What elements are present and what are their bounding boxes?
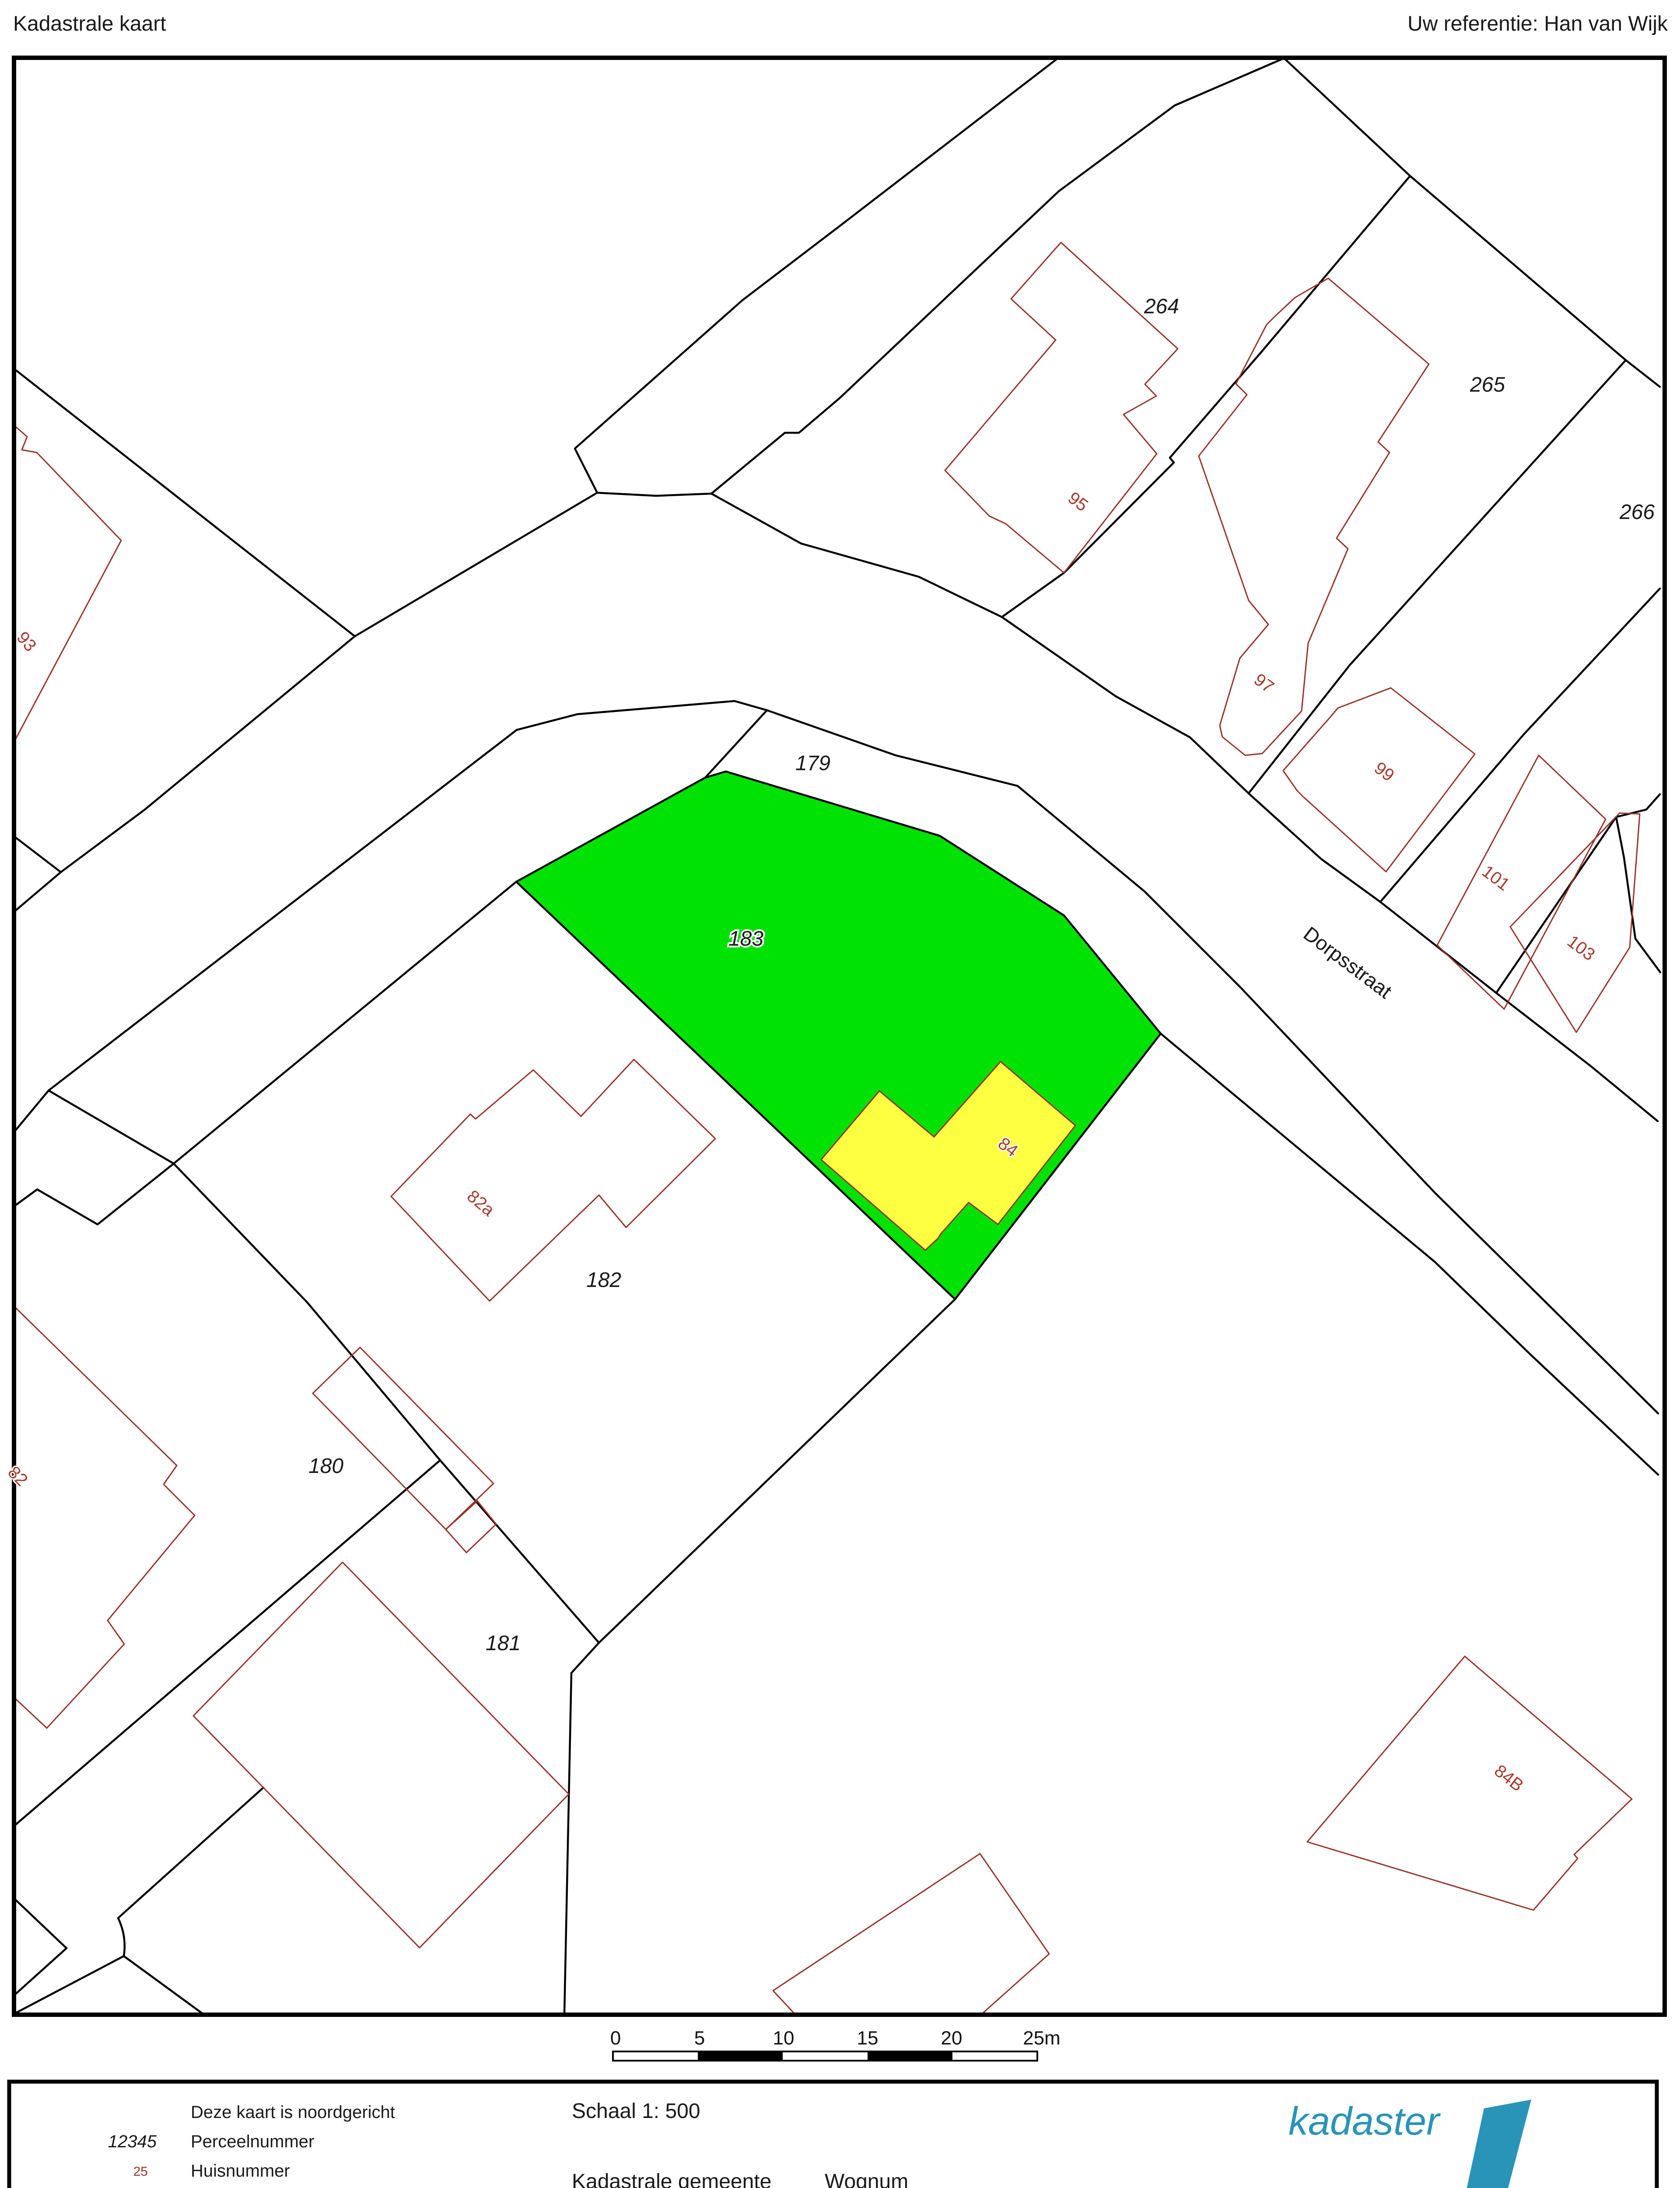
svg-text:Huisnummer: Huisnummer xyxy=(191,2161,290,2181)
svg-text:183: 183 xyxy=(728,927,763,950)
svg-text:182: 182 xyxy=(586,1269,621,1292)
svg-text:180: 180 xyxy=(308,1455,343,1478)
svg-text:Deze kaart is noordgericht: Deze kaart is noordgericht xyxy=(191,2103,395,2122)
svg-text:Schaal 1: 500: Schaal 1: 500 xyxy=(572,2100,700,2123)
svg-text:Kadastrale gemeente: Kadastrale gemeente xyxy=(572,2170,771,2188)
svg-text:25m: 25m xyxy=(1023,2027,1060,2049)
svg-text:0: 0 xyxy=(610,2027,621,2049)
svg-text:Uw referentie: Han van Wijk: Uw referentie: Han van Wijk xyxy=(1407,12,1668,35)
svg-text:266: 266 xyxy=(1619,501,1655,524)
svg-text:5: 5 xyxy=(694,2027,705,2049)
svg-text:Wognum: Wognum xyxy=(825,2170,908,2188)
svg-text:kadaster: kadaster xyxy=(1288,2100,1441,2143)
svg-text:181: 181 xyxy=(486,1632,521,1655)
svg-text:179: 179 xyxy=(795,752,830,775)
svg-text:10: 10 xyxy=(773,2027,794,2049)
svg-text:12345: 12345 xyxy=(108,2132,157,2151)
svg-text:Kadastrale kaart: Kadastrale kaart xyxy=(13,12,166,35)
svg-text:15: 15 xyxy=(857,2027,878,2049)
svg-text:265: 265 xyxy=(1470,373,1505,396)
svg-text:25: 25 xyxy=(133,2164,148,2179)
svg-text:Perceelnummer: Perceelnummer xyxy=(191,2132,314,2151)
svg-text:20: 20 xyxy=(941,2027,962,2049)
svg-text:264: 264 xyxy=(1144,295,1179,318)
